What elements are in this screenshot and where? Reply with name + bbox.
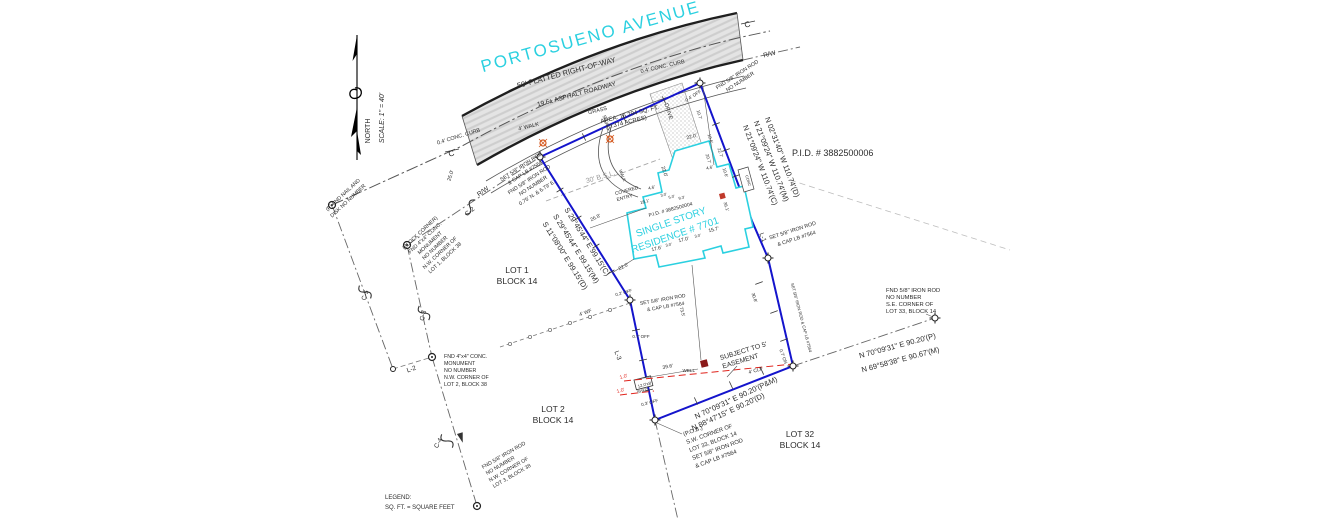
se-rod-2: NO NUMBER (886, 295, 921, 301)
survey-plat-page: PORTOSUENO AVENUE50' PLATTED RIGHT-OF-WA… (0, 0, 1320, 520)
lot2-mon-4: N.W. CORNER OF (444, 375, 489, 381)
lot2-label: LOT 2 (541, 404, 565, 414)
lot2-mon-3: NO NUMBER (444, 368, 477, 374)
se-rod-4: LOT 33, BLOCK 14 (886, 309, 937, 315)
monument-l2-end (391, 367, 396, 372)
lot32-label: LOT 32 (786, 429, 814, 439)
pid-parcel: P.I.D. # 3882500006 (792, 148, 873, 158)
lot2-mon-1: FND 4"x4" CONC. (444, 354, 487, 360)
lot2-mon-5: LOT 2, BLOCK 38 (444, 382, 487, 388)
lot2-block: BLOCK 14 (533, 415, 574, 425)
survey-plat-drawing: PORTOSUENO AVENUE50' PLATTED RIGHT-OF-WA… (0, 0, 1320, 520)
off-07: 0.7' OFF (632, 334, 650, 339)
monument-lot3 (474, 503, 481, 510)
lot32-block: BLOCK 14 (780, 440, 821, 450)
se-rod-3: S.E. CORNER OF (886, 302, 934, 308)
north-label: NORTH (365, 119, 372, 144)
scale-label: SCALE: 1" = 40' (379, 92, 386, 143)
well-label: WELL (682, 368, 695, 373)
legend-line: SQ. FT. = SQUARE FEET (385, 505, 455, 511)
lot1-label: LOT 1 (505, 265, 529, 275)
legend-title: LEGEND: (385, 495, 412, 501)
monument-lot2 (429, 354, 436, 361)
lot2-mon-2: MONUMENT (444, 361, 476, 367)
lot1-block: BLOCK 14 (497, 276, 538, 286)
se-rod-1: FND 5/8" IRON ROD (886, 288, 940, 294)
